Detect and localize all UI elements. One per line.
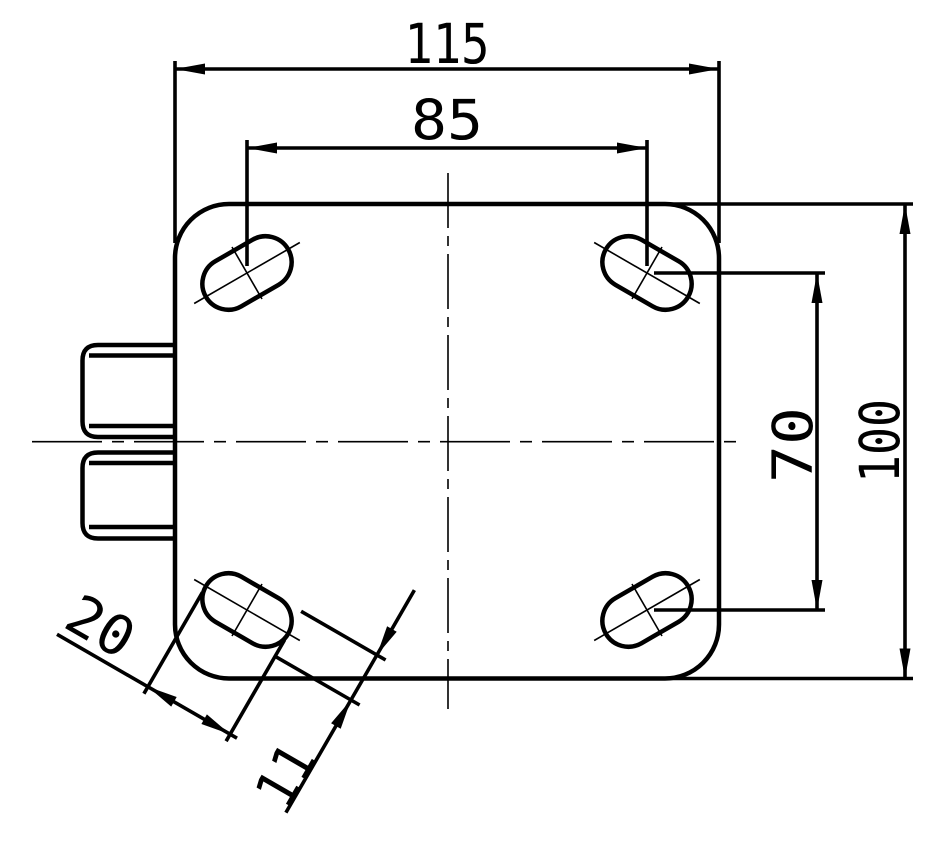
dim-85-label: 85 bbox=[411, 88, 483, 152]
arrowhead-top bbox=[812, 273, 823, 303]
dim-11-slot-width: 11 bbox=[242, 590, 414, 818]
arrowhead-right bbox=[689, 64, 719, 75]
dim-11-label: 11 bbox=[242, 733, 328, 819]
dim-85-hole-spacing: 85 bbox=[247, 88, 647, 266]
arrowhead-bottom bbox=[900, 649, 911, 679]
boss-top-outline bbox=[83, 345, 176, 437]
arrowhead-lower bbox=[331, 700, 351, 729]
slot-cross-mark bbox=[232, 584, 262, 636]
arrowhead-left bbox=[247, 143, 277, 154]
extension-line bbox=[301, 611, 386, 660]
dim-115-label: 115 bbox=[405, 12, 490, 76]
dim-100-label: 100 bbox=[848, 399, 912, 483]
technical-drawing-canvas: 115 85 70 100 bbox=[0, 0, 949, 844]
arrowhead-right bbox=[617, 143, 647, 154]
arrowhead-top bbox=[900, 204, 911, 234]
slot-bottom-left bbox=[179, 554, 315, 667]
dim-20-label: 20 bbox=[55, 582, 146, 671]
dim-70-label: 70 bbox=[761, 407, 825, 483]
arrowhead-upper bbox=[377, 626, 397, 655]
arrowhead-upper bbox=[148, 687, 177, 707]
arrowhead-bottom bbox=[812, 580, 823, 610]
arrowhead-lower bbox=[201, 714, 230, 734]
arrowhead-left bbox=[175, 64, 205, 75]
technical-drawing-page: 115 85 70 100 bbox=[0, 0, 949, 844]
